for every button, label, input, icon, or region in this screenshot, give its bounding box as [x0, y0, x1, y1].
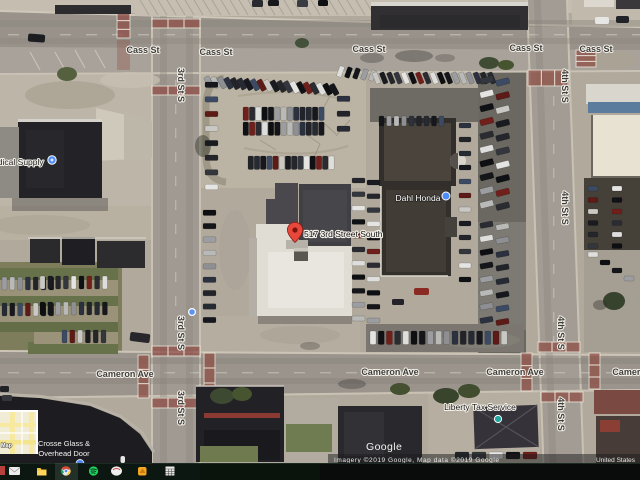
svg-text:Cass St: Cass St [509, 43, 542, 53]
svg-text:Cass St: Cass St [199, 47, 232, 57]
svg-text:3rd St S: 3rd St S [176, 68, 186, 102]
svg-text:Overhead Door: Overhead Door [38, 449, 90, 458]
svg-text:4th St S: 4th St S [556, 397, 566, 431]
svg-text:Cass St: Cass St [352, 44, 385, 54]
svg-text:Cameron Ave: Cameron Ave [612, 367, 640, 377]
svg-text:4th St S: 4th St S [560, 69, 570, 103]
svg-text:Cass St: Cass St [579, 44, 612, 54]
svg-text:United States: United States [596, 457, 636, 464]
svg-text:Cameron Ave: Cameron Ave [361, 367, 418, 377]
svg-text:517 3rd Street South: 517 3rd Street South [304, 229, 383, 239]
svg-text:4th St S: 4th St S [556, 316, 566, 350]
svg-text:Crosse Glass &: Crosse Glass & [38, 439, 90, 448]
svg-text:4th St S: 4th St S [560, 191, 570, 225]
svg-text:Cass St: Cass St [126, 45, 159, 55]
svg-text:3rd St S: 3rd St S [176, 316, 186, 350]
svg-text:Google: Google [366, 441, 402, 453]
svg-text:Map: Map [1, 443, 13, 449]
svg-text:Dahl Honda: Dahl Honda [396, 193, 441, 203]
svg-text:Cameron Ave: Cameron Ave [96, 369, 153, 379]
svg-text:Cameron Ave: Cameron Ave [486, 367, 543, 377]
svg-text:3rd St S: 3rd St S [176, 391, 186, 425]
svg-text:Medical Supply: Medical Supply [0, 157, 44, 167]
svg-text:Liberty Tax Service: Liberty Tax Service [444, 402, 516, 412]
svg-text:Imagery ©2019 Google, Map data: Imagery ©2019 Google, Map data ©2019 Goo… [334, 456, 500, 464]
